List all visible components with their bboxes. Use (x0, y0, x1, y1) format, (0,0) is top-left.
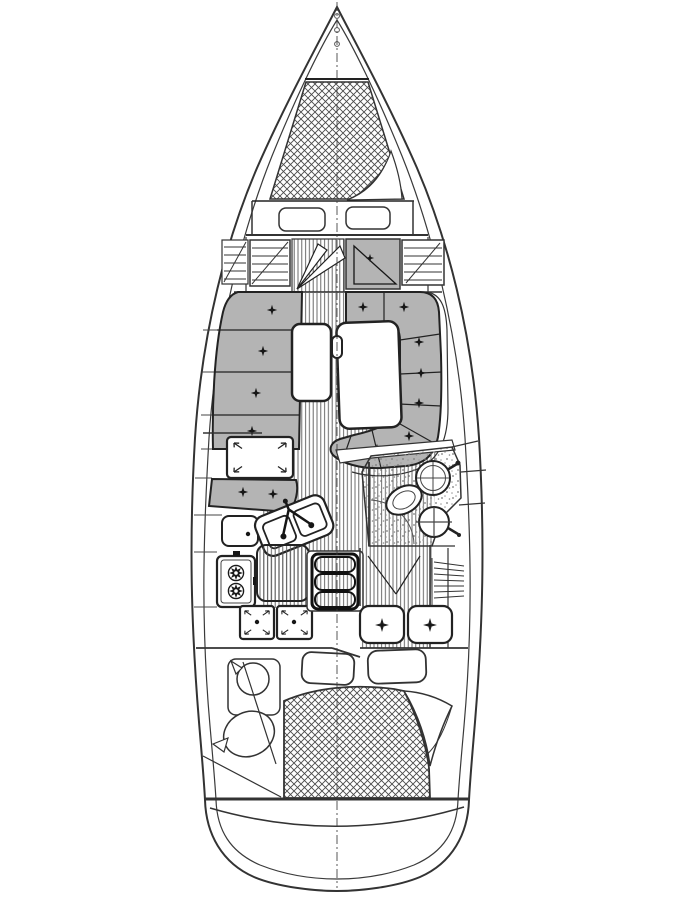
pillow (367, 649, 426, 684)
galley-locker (222, 516, 258, 546)
icebox-lids (240, 606, 312, 639)
nav-chart-table (227, 437, 293, 478)
hanging-locker-port (222, 240, 290, 286)
forward-door-panel (346, 239, 400, 289)
aft-berth-mattress (284, 687, 430, 798)
galley-counter (257, 545, 309, 601)
pillow (301, 652, 355, 686)
hanging-locker-starboard (402, 240, 444, 285)
companionway-steps (307, 551, 363, 611)
aft-cabin (284, 649, 452, 798)
port-settee (213, 292, 302, 449)
floor-plan-drawing (0, 0, 674, 900)
forward-passage (222, 237, 444, 292)
boat-floor-plan (0, 0, 674, 900)
galley-stove (217, 551, 258, 607)
